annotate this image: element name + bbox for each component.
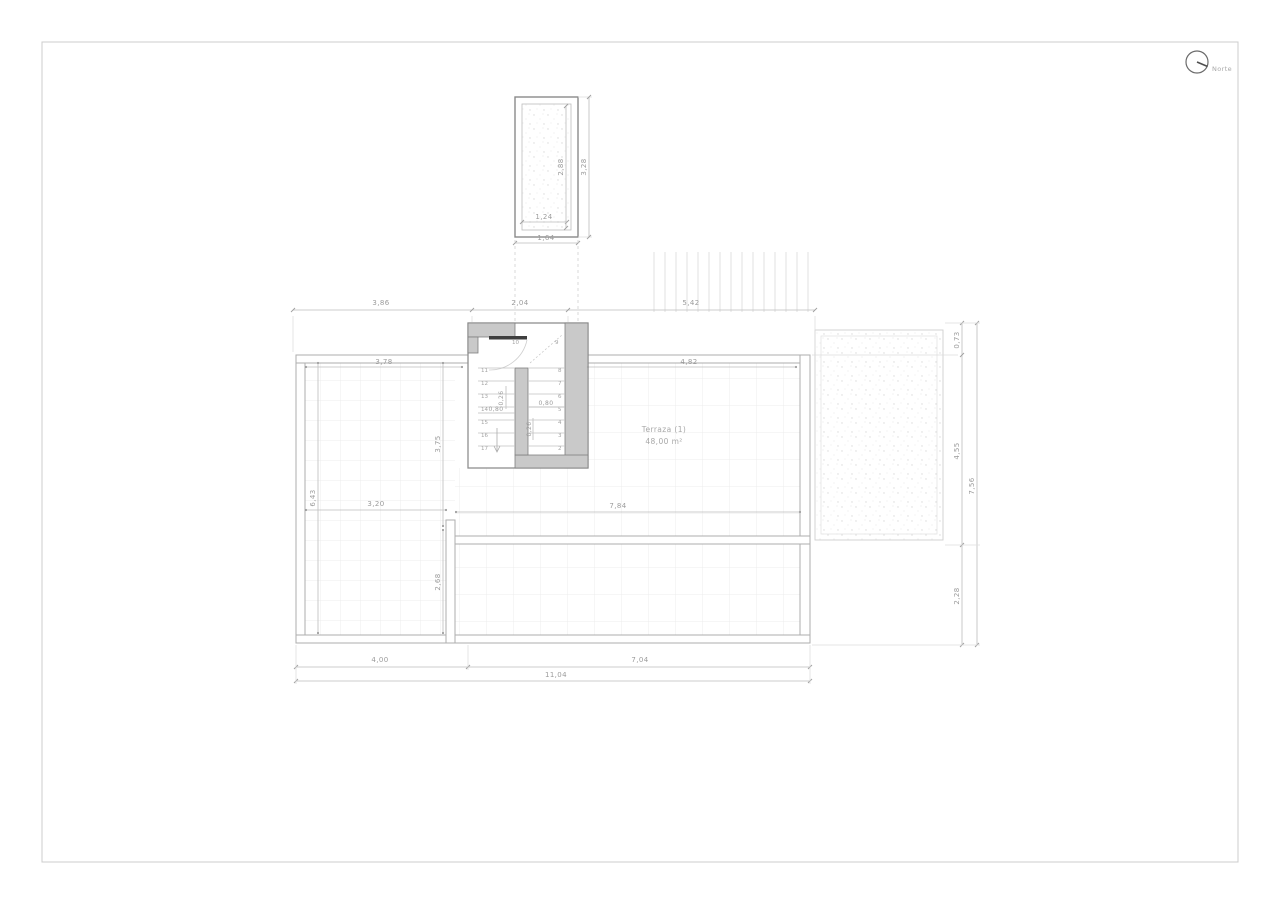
stair-wall-top [468,323,515,337]
dim-chimney-outer-height: 3,28 [580,158,588,175]
staircase: 11 12 13 14 15 16 17 8 7 6 5 4 3 2 10 9 … [468,323,588,468]
dim-top-2: 2,04 [511,299,528,307]
tiles-under-stair [455,468,588,536]
dim-right-room-width-top: 4,82 [680,358,697,366]
step-number: 8 [558,368,562,374]
dim-bottom-2: 7,04 [631,656,648,664]
dim-chimney-inner-width: 1,24 [535,213,552,221]
wall-bottom [296,635,810,643]
stair-wall-spine [515,368,528,455]
dim-bottom-1: 4,00 [371,656,388,664]
step-number: 15 [481,420,488,426]
dim-left-room-width: 3,20 [367,500,384,508]
step-number-landing: 10 [512,340,519,346]
dim-top-3: 5,42 [682,299,699,307]
step-number: 6 [558,394,562,400]
step-number: 17 [481,446,488,452]
step-number: 12 [481,381,488,387]
dim-middle-width: 7,84 [609,502,626,510]
dim-chimney-inner-height: 2,88 [557,158,565,175]
step-number: 13 [481,394,488,400]
stair-wall-top-left [468,337,478,353]
step-number: 7 [558,381,562,387]
wall-left [296,355,305,643]
step-number: 16 [481,433,488,439]
step-number: 5 [558,407,562,413]
tiles-right-room [588,363,800,536]
dim-upper-height: 3,75 [434,435,442,452]
dim-stair-width-left: 0,80 [489,406,504,413]
dim-top-1: 3,86 [372,299,389,307]
wall-divider-horizontal [450,536,810,544]
dim-left-room-height: 6,43 [309,489,317,506]
step-number: 14 [481,407,488,413]
dim-right-3: 2,28 [953,587,961,604]
stair-wall-bottom [515,455,588,468]
step-number: 11 [481,368,488,374]
dim-chimney-outer-width: 1,64 [537,234,554,242]
pergola-hatch-area [645,252,810,312]
room-area: 48,00 m² [645,437,682,446]
dim-right-1: 0,73 [953,331,961,348]
north-label: Norte [1212,65,1232,73]
floor-plan-canvas: Norte 1,24 1,64 2,88 3,28 [0,0,1280,905]
dim-left-room-width-top: 3,78 [375,358,392,366]
step-number: 2 [558,446,562,452]
wall-right [800,355,810,643]
step-number-landing: 9 [555,340,559,346]
dim-right-2: 4,55 [953,442,961,459]
door-lintel [489,336,527,340]
stair-wall-right [565,323,588,468]
dim-lower-height: 2,68 [434,573,442,590]
step-number: 3 [558,433,562,439]
dim-bottom-total: 11,04 [545,671,567,679]
dim-stair-tread-right: 0,26 [526,422,533,437]
floor-plan-drawing: Norte 1,24 1,64 2,88 3,28 [0,0,1280,905]
gravel-area [815,330,943,540]
wall-divider-vertical [446,520,455,643]
tiles-bottom-room [455,544,800,635]
step-number: 4 [558,420,562,426]
dim-stair-tread-left: 0,26 [498,391,505,406]
dim-right-total: 7,56 [968,477,976,494]
dim-stair-width-right: 0,80 [539,400,554,407]
room-name: Terraza (1) [641,425,687,434]
tiles-left-room [305,363,455,635]
